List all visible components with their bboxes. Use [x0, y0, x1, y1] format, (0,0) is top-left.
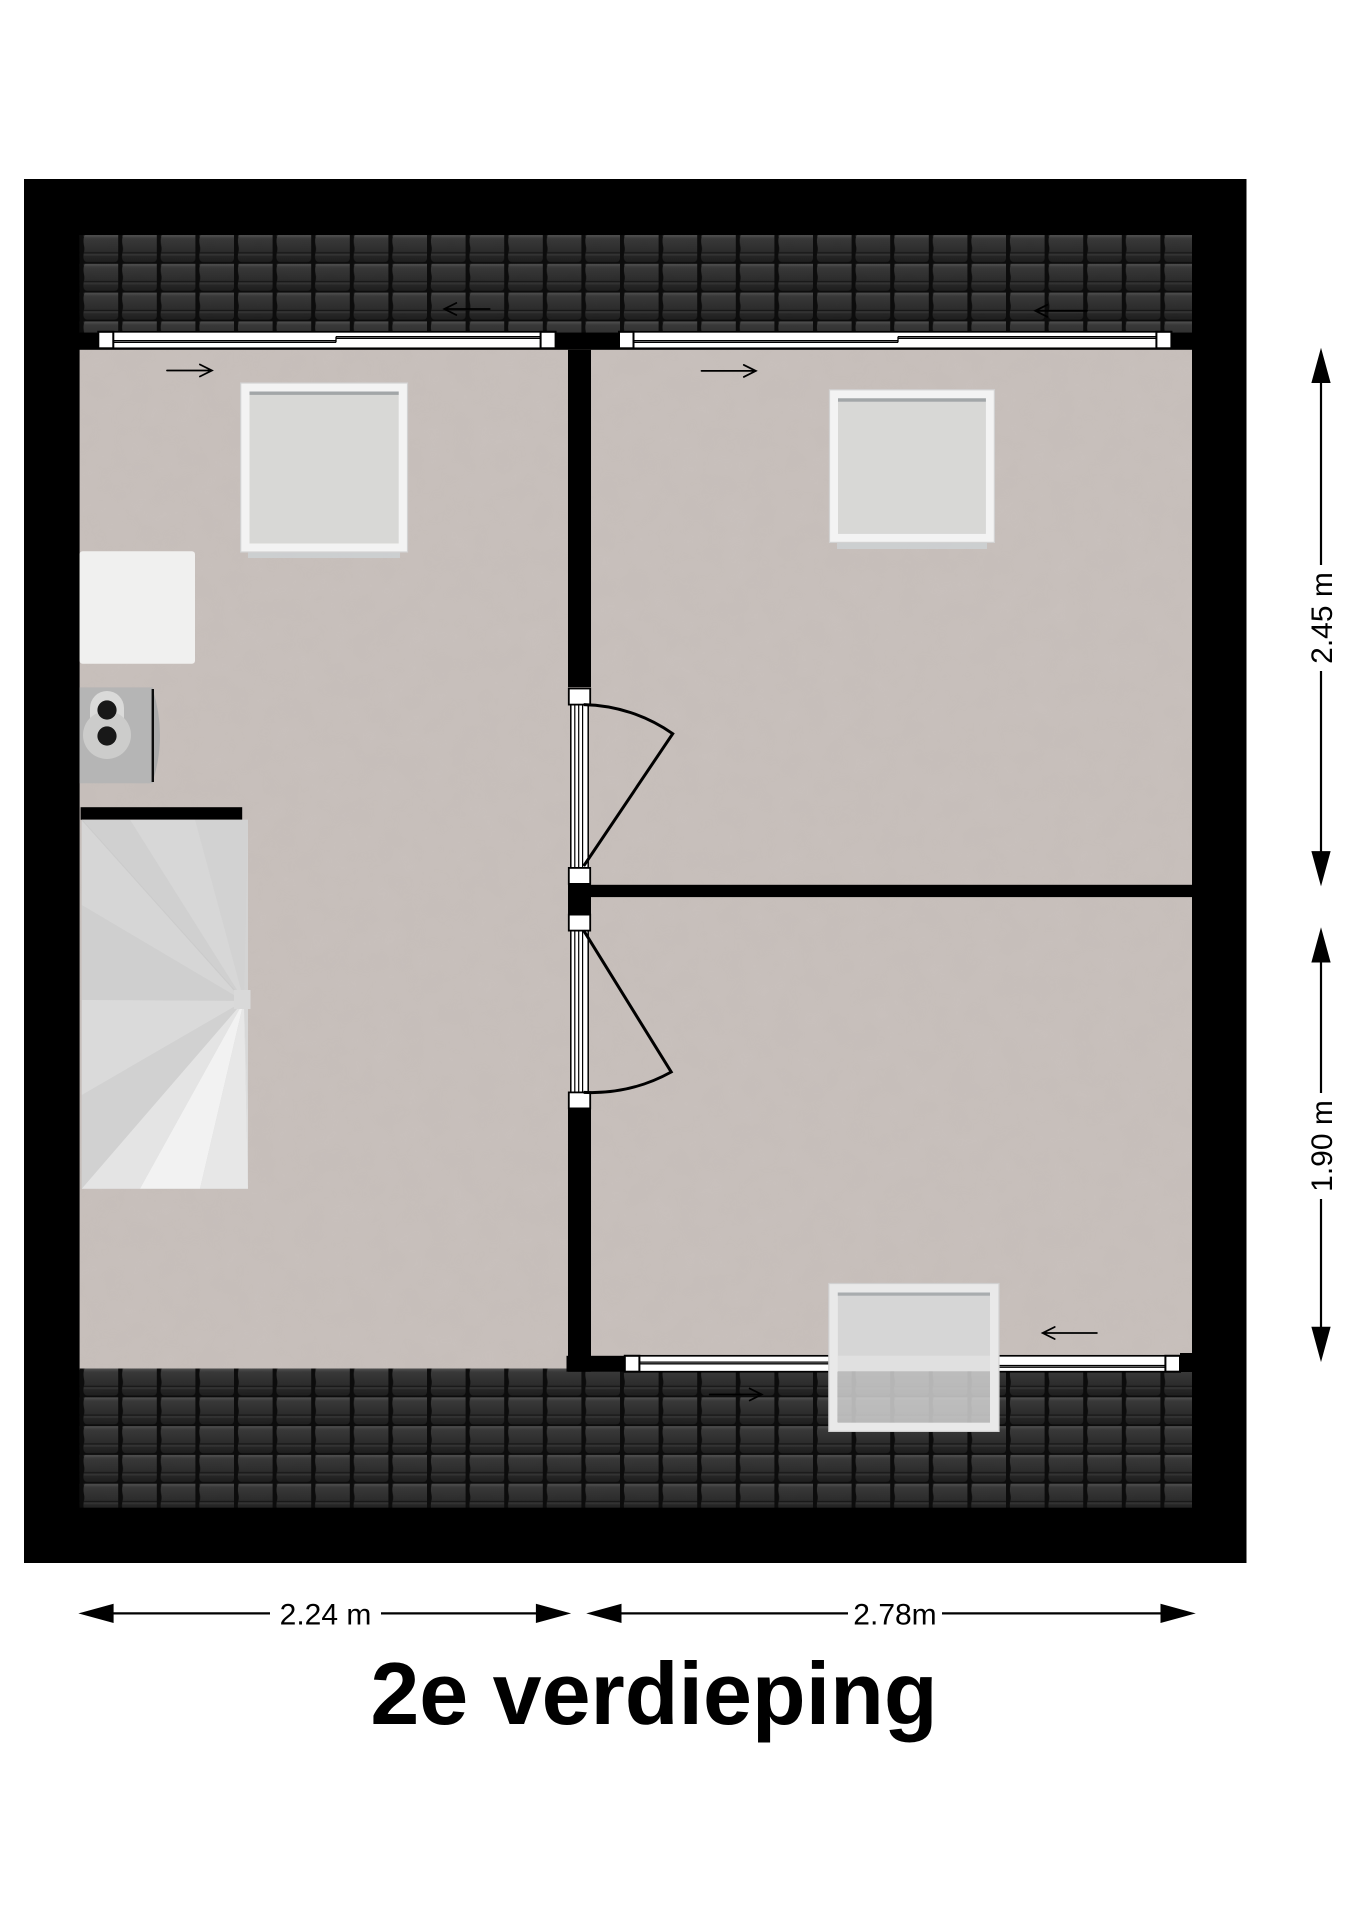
svg-text:2e verdieping: 2e verdieping	[370, 1644, 937, 1743]
svg-text:1.90 m: 1.90 m	[1306, 1100, 1339, 1192]
svg-text:2.45 m: 2.45 m	[1306, 572, 1339, 664]
svg-text:2.24 m: 2.24 m	[280, 1599, 372, 1632]
svg-text:2.78m: 2.78m	[853, 1599, 936, 1632]
